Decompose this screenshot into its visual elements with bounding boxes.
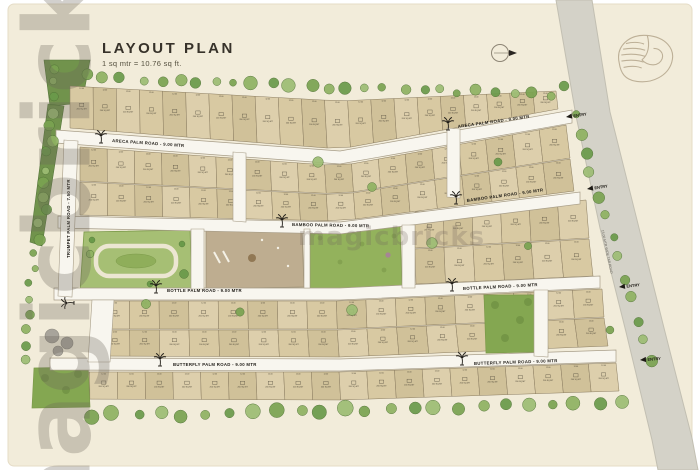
plot-area-text: 200 SQ.MT	[472, 189, 483, 191]
plot-area-text: 200 SQ.MT	[171, 203, 182, 205]
lawn-texture	[318, 236, 323, 241]
plot-dim-text: 12.00	[172, 93, 177, 95]
green-texture	[62, 386, 70, 394]
plot-area-text: 200 SQ.MT	[307, 179, 318, 181]
tree	[634, 317, 643, 326]
plot-dim-text: 12.00	[393, 188, 398, 190]
plot-area-text: 200 SQ.MT	[542, 260, 553, 262]
tree	[21, 324, 30, 333]
plot-area-text: 200 SQ.MT	[539, 222, 550, 224]
plot-dim-text: 12.00	[379, 301, 384, 303]
plot-dim-text: 12.00	[428, 98, 433, 100]
play-dot	[261, 239, 263, 241]
plot-area-text: 200 SQ.MT	[309, 124, 320, 126]
tree	[548, 400, 557, 409]
tree	[26, 296, 33, 303]
plot-dim-text: 12.00	[261, 303, 266, 305]
tree	[559, 81, 569, 91]
plot-area-text: 200 SQ.MT	[526, 181, 537, 183]
plot-area-text: 200 SQ.MT	[286, 122, 297, 124]
tree	[176, 74, 188, 86]
plot-area-text: 200 SQ.MT	[317, 316, 328, 318]
plot-area-text: 200 SQ.MT	[288, 344, 299, 346]
plot-dim-text: 12.00	[311, 195, 316, 197]
flower-bed	[385, 252, 390, 257]
plot-area-text: 200 SQ.MT	[499, 185, 510, 187]
plot-dim-text: 12.00	[91, 150, 96, 152]
plot-area-text: 200 SQ.MT	[265, 386, 276, 388]
connector-road	[233, 152, 246, 222]
plot-dim-text: 12.00	[201, 190, 206, 192]
plot-dim-text: 12.00	[291, 332, 296, 334]
plot-dim-text: 12.00	[520, 94, 525, 96]
tree	[626, 291, 637, 302]
green-texture	[41, 374, 49, 382]
tree	[141, 299, 150, 308]
plot-area-text: 200 SQ.MT	[169, 344, 180, 346]
tree	[494, 158, 502, 166]
tree	[50, 77, 57, 84]
tree	[140, 77, 148, 85]
plot-area-text: 200 SQ.MT	[417, 197, 428, 199]
plot-area-text: 200 SQ.MT	[435, 311, 446, 313]
plot-dim-text: 12.00	[339, 195, 344, 197]
plot-dim-text: 12.00	[219, 96, 224, 98]
tree	[34, 234, 46, 246]
tree	[638, 335, 647, 344]
green-texture	[491, 301, 499, 309]
green-texture	[501, 334, 509, 342]
plot-dim-text: 12.00	[589, 320, 594, 322]
plot-area-text: 200 SQ.MT	[515, 381, 526, 383]
plot-area-text: 200 SQ.MT	[229, 344, 240, 346]
plot-dim-text: 12.00	[185, 374, 190, 376]
plot-dim-text: 12.00	[552, 129, 557, 131]
plot-area-text: 200 SQ.MT	[568, 221, 579, 223]
plot-area-text: 200 SQ.MT	[89, 200, 100, 202]
plot-area-text: 200 SQ.MT	[415, 167, 426, 169]
tree	[48, 108, 59, 119]
plot-dim-text: 12.00	[202, 332, 207, 334]
tree	[427, 238, 438, 249]
plot-area-text: 200 SQ.MT	[139, 316, 150, 318]
tree	[426, 400, 441, 415]
plot-area-text: 200 SQ.MT	[154, 386, 165, 388]
plot-dim-text: 12.00	[157, 374, 162, 376]
plot-dim-text: 12.00	[438, 298, 443, 300]
tree	[33, 218, 42, 227]
plot-dim-text: 12.00	[174, 188, 179, 190]
plot-dim-text: 12.00	[502, 171, 507, 173]
plot-dim-text: 12.00	[470, 326, 475, 328]
tree	[401, 85, 411, 95]
tree	[50, 92, 59, 101]
tree	[312, 405, 326, 419]
plot-area-text: 200 SQ.MT	[404, 384, 415, 386]
play-dot	[287, 265, 289, 267]
plot-dim-text: 12.00	[379, 372, 384, 374]
plot-dim-text: 12.00	[556, 293, 561, 295]
tree	[313, 157, 324, 168]
plot-area-text: 200 SQ.MT	[199, 344, 210, 346]
tree	[174, 410, 187, 423]
plot-area-text: 200 SQ.MT	[511, 224, 522, 226]
plot-area-text: 200 SQ.MT	[216, 118, 227, 120]
plot-area-text: 200 SQ.MT	[598, 378, 609, 380]
plot-dim-text: 12.00	[324, 374, 329, 376]
plot-area-text: 200 SQ.MT	[116, 201, 127, 203]
plot-area-text: 200 SQ.MT	[571, 259, 582, 261]
plot-area-text: 200 SQ.MT	[140, 344, 151, 346]
tree	[524, 242, 531, 249]
plot-dim-text: 12.00	[290, 303, 295, 305]
plot-area-text: 200 SQ.MT	[482, 226, 493, 228]
garden-tree	[179, 241, 185, 247]
plot-area-text: 200 SQ.MT	[336, 207, 347, 209]
plot-dim-text: 12.00	[351, 331, 356, 333]
tree	[347, 305, 358, 316]
plot-dim-text: 12.00	[312, 101, 317, 103]
plot-dim-text: 12.00	[474, 96, 479, 98]
plot-dim-text: 12.00	[381, 330, 386, 332]
plot-area-text: 200 SQ.MT	[349, 386, 360, 388]
tree	[244, 76, 258, 90]
tree	[225, 408, 234, 417]
plot-area-text: 200 SQ.MT	[334, 179, 345, 181]
plot-area-text: 200 SQ.MT	[543, 380, 554, 382]
tree	[42, 205, 52, 215]
plot-area-text: 200 SQ.MT	[182, 386, 193, 388]
layout-plan-page: 200 SQ.MT12.00200 SQ.MT12.00200 SQ.MT12.…	[0, 0, 700, 470]
plot-dim-text: 12.00	[335, 102, 340, 104]
tree	[201, 410, 210, 419]
plot-dim-text: 12.00	[146, 187, 151, 189]
tree	[42, 147, 51, 156]
tree	[339, 82, 352, 95]
plot-area-text: 200 SQ.MT	[308, 208, 319, 210]
plot-dim-text: 12.00	[172, 332, 177, 334]
plot-area-text: 200 SQ.MT	[437, 340, 448, 342]
plot-dim-text: 12.00	[364, 163, 369, 165]
green-texture	[74, 370, 82, 378]
plot-area-text: 200 SQ.MT	[571, 379, 582, 381]
site-plan-svg: 200 SQ.MT12.00200 SQ.MT12.00200 SQ.MT12.…	[0, 0, 700, 470]
plot-dim-text: 12.00	[351, 373, 356, 375]
plot-area-text: 200 SQ.MT	[378, 342, 389, 344]
tree	[269, 403, 284, 418]
plot-area-text: 200 SQ.MT	[287, 316, 298, 318]
plot-dim-text: 12.00	[103, 90, 108, 92]
plot-dim-text: 12.00	[242, 97, 247, 99]
tree	[523, 398, 536, 411]
tree	[307, 79, 319, 91]
plot-area-text: 200 SQ.MT	[237, 386, 248, 388]
plot-dim-text: 12.00	[268, 374, 273, 376]
plot-area-text: 200 SQ.MT	[144, 202, 155, 204]
plot-area-text: 200 SQ.MT	[361, 176, 372, 178]
plot-dim-text: 12.00	[289, 100, 294, 102]
plot-dim-text: 12.00	[256, 192, 261, 194]
plot-dim-text: 12.00	[428, 250, 433, 252]
plot-dim-text: 12.00	[420, 184, 425, 186]
plot-area-text: 200 SQ.MT	[318, 344, 329, 346]
plot-dim-text: 12.00	[440, 327, 445, 329]
plot-area-text: 200 SQ.MT	[460, 383, 471, 385]
plot-dim-text: 12.00	[381, 101, 386, 103]
lawn-texture	[360, 242, 365, 247]
plot-area-text: 200 SQ.MT	[77, 108, 88, 110]
connector-road	[534, 290, 548, 357]
tree	[421, 86, 430, 95]
tree	[282, 79, 296, 93]
tree	[82, 69, 93, 80]
tree	[453, 90, 460, 97]
plot-dim-text: 12.00	[200, 158, 205, 160]
plot-dim-text: 12.00	[405, 100, 410, 102]
tree	[44, 120, 55, 131]
tree	[156, 406, 169, 419]
tree	[606, 326, 614, 334]
plot-dim-text: 12.00	[451, 97, 456, 99]
plot-dim-text: 12.00	[518, 368, 523, 370]
plot-dim-text: 12.00	[91, 184, 96, 186]
tree	[84, 410, 99, 425]
plot-area-text: 200 SQ.MT	[228, 316, 239, 318]
plot-dim-text: 12.00	[101, 374, 106, 376]
plot-dim-text: 12.00	[149, 92, 154, 94]
plot-area-text: 200 SQ.MT	[348, 343, 359, 345]
plot-area-text: 200 SQ.MT	[406, 312, 417, 314]
plot-dim-text: 12.00	[265, 99, 270, 101]
plot-dim-text: 12.00	[310, 165, 315, 167]
plot-dim-text: 12.00	[498, 139, 503, 141]
plot-area-text: 200 SQ.MT	[252, 175, 263, 177]
plot-area-text: 200 SQ.MT	[402, 118, 413, 120]
plot-area-text: 200 SQ.MT	[454, 265, 465, 267]
plot-dim-text: 12.00	[320, 303, 325, 305]
plot-dim-text: 12.00	[457, 248, 462, 250]
plot-dim-text: 12.00	[201, 303, 206, 305]
plot-area-text: 200 SQ.MT	[321, 387, 332, 389]
green-texture	[524, 298, 532, 306]
tree	[601, 210, 610, 219]
plot-area-text: 200 SQ.MT	[198, 316, 209, 318]
tree	[38, 177, 49, 188]
plot-area-text: 200 SQ.MT	[355, 123, 366, 125]
tree	[511, 90, 519, 98]
plot-area-text: 200 SQ.MT	[379, 120, 390, 122]
plot-area-text: 200 SQ.MT	[363, 205, 374, 207]
plot-dim-text: 12.00	[213, 374, 218, 376]
garden-island	[116, 254, 156, 268]
utility-structure	[45, 329, 59, 343]
tree	[368, 183, 377, 192]
plot-area-text: 200 SQ.MT	[388, 172, 399, 174]
tree	[230, 79, 237, 86]
plot-dim-text: 12.00	[119, 152, 124, 154]
plot-dim-text: 12.00	[229, 191, 234, 193]
plot-dim-text: 12.00	[471, 144, 476, 146]
tree	[594, 398, 607, 411]
connector-road	[447, 128, 460, 198]
tree	[42, 167, 49, 174]
plot-area-text: 200 SQ.MT	[517, 105, 528, 107]
plot-area-text: 200 SQ.MT	[465, 310, 476, 312]
plot-area-text: 200 SQ.MT	[210, 386, 221, 388]
tree	[593, 192, 605, 204]
tree	[103, 405, 118, 420]
plot-area-text: 200 SQ.MT	[513, 262, 524, 264]
plot-dim-text: 12.00	[262, 332, 267, 334]
plot-area-text: 200 SQ.MT	[556, 335, 567, 337]
tree	[50, 65, 59, 74]
plot-area-text: 200 SQ.MT	[100, 110, 111, 112]
tree	[96, 72, 107, 83]
tree	[378, 83, 386, 91]
tree	[324, 84, 334, 94]
plot-dim-text: 12.00	[574, 366, 579, 368]
tree	[409, 402, 421, 414]
plot-dim-text: 12.00	[172, 303, 177, 305]
tree	[566, 396, 580, 410]
plot-area-text: 200 SQ.MT	[376, 385, 387, 387]
tree	[386, 403, 396, 413]
road-name-label: TRUMPET PALM ROAD - 7.50 MTR	[66, 179, 71, 258]
plot-dim-text: 12.00	[463, 370, 468, 372]
plot-area-text: 200 SQ.MT	[553, 178, 564, 180]
plot-area-text: 200 SQ.MT	[522, 149, 533, 151]
plot-area-text: 200 SQ.MT	[469, 158, 480, 160]
tree	[135, 410, 144, 419]
tree	[470, 84, 481, 95]
plot-dim-text: 12.00	[410, 328, 415, 330]
tree	[21, 355, 30, 364]
lawn-texture	[338, 260, 343, 265]
plot-dim-text: 12.00	[113, 332, 118, 334]
tree	[360, 84, 368, 92]
plot-area-text: 200 SQ.MT	[239, 119, 250, 121]
plot-area-text: 200 SQ.MT	[424, 230, 435, 232]
tree	[26, 310, 35, 319]
tree	[180, 270, 189, 279]
plot-area-text: 200 SQ.MT	[169, 316, 180, 318]
utility-structure	[53, 346, 63, 356]
plot-area-text: 200 SQ.MT	[467, 338, 478, 340]
plot-area-text: 200 SQ.MT	[279, 177, 290, 179]
plot-dim-text: 12.00	[142, 332, 147, 334]
plot-area-text: 200 SQ.MT	[116, 167, 127, 169]
plot-dim-text: 12.00	[358, 102, 363, 104]
plot-area-text: 200 SQ.MT	[198, 172, 209, 174]
plot-area-text: 200 SQ.MT	[540, 102, 551, 104]
plot-dim-text: 12.00	[529, 167, 534, 169]
plot-dim-text: 12.00	[79, 88, 84, 90]
plot-dim-text: 12.00	[468, 297, 473, 299]
lawn-texture	[392, 234, 397, 239]
plot-dim-text: 12.00	[556, 163, 561, 165]
tree	[581, 148, 593, 160]
plot-area-text: 200 SQ.MT	[89, 165, 100, 167]
plot-dim-text: 12.00	[435, 370, 440, 372]
tree	[491, 88, 500, 97]
tree	[269, 78, 279, 88]
plot-area-text: 200 SQ.MT	[549, 144, 560, 146]
plot-area-text: 200 SQ.MT	[170, 115, 181, 117]
plot-dim-text: 12.00	[490, 369, 495, 371]
plot-dim-text: 12.00	[146, 154, 151, 156]
plot-dim-text: 12.00	[545, 243, 550, 245]
plot-dim-text: 12.00	[240, 374, 245, 376]
play-dot	[277, 247, 279, 249]
utility-structure	[61, 337, 73, 349]
plot-area-text: 200 SQ.MT	[376, 314, 387, 316]
plot-area-text: 200 SQ.MT	[332, 125, 343, 127]
plot-dim-text: 12.00	[232, 332, 237, 334]
tree	[25, 279, 32, 286]
plot-dim-text: 12.00	[337, 166, 342, 168]
tree	[359, 406, 370, 417]
connector-road	[191, 229, 204, 289]
tree	[158, 77, 168, 87]
tree	[526, 87, 537, 98]
plot-dim-text: 12.00	[391, 158, 396, 160]
plot-dim-text: 12.00	[486, 246, 491, 248]
plot-dim-text: 12.00	[559, 322, 564, 324]
plot-area-text: 200 SQ.MT	[99, 386, 110, 388]
tree	[190, 78, 201, 89]
plot-area-text: 200 SQ.MT	[554, 306, 565, 308]
lawn-texture	[382, 268, 387, 273]
plot-area-text: 200 SQ.MT	[432, 383, 443, 385]
plot-area-text: 200 SQ.MT	[407, 341, 418, 343]
tree	[32, 265, 38, 271]
plot-dim-text: 12.00	[228, 160, 233, 162]
plot-dim-text: 12.00	[475, 175, 480, 177]
connector-road	[304, 229, 310, 288]
plot-area-text: 200 SQ.MT	[146, 113, 157, 115]
plot-area-text: 200 SQ.MT	[293, 387, 304, 389]
tree	[583, 167, 594, 178]
plot-area-text: 200 SQ.MT	[126, 386, 137, 388]
plot-area-text: 200 SQ.MT	[170, 170, 181, 172]
garden-tree	[89, 237, 95, 243]
tree	[30, 250, 37, 257]
road-name-label: BOTTLE PALM ROAD - 9.00 MTR	[167, 288, 242, 293]
plot-area-text: 200 SQ.MT	[198, 204, 209, 206]
tree	[114, 72, 125, 83]
plot-area-text: 200 SQ.MT	[263, 121, 274, 123]
plot-dim-text: 12.00	[516, 245, 521, 247]
tree	[86, 250, 94, 258]
plot-area-text: 200 SQ.MT	[448, 113, 459, 115]
plot-area-text: 200 SQ.MT	[453, 228, 464, 230]
tree	[213, 78, 221, 86]
plot-dim-text: 12.00	[255, 162, 260, 164]
plot-area-text: 200 SQ.MT	[425, 115, 436, 117]
plot-dim-text: 12.00	[231, 303, 236, 305]
plot-dim-text: 12.00	[574, 241, 579, 243]
plot-dim-text: 12.00	[119, 186, 124, 188]
plot-dim-text: 12.00	[546, 367, 551, 369]
tree	[452, 403, 464, 415]
tree	[576, 129, 588, 141]
plot-area-text: 200 SQ.MT	[496, 153, 507, 155]
tree	[297, 405, 307, 415]
plot-dim-text: 12.00	[418, 153, 423, 155]
plot-dim-text: 12.00	[173, 156, 178, 158]
tree	[21, 342, 30, 351]
tree	[616, 395, 629, 408]
